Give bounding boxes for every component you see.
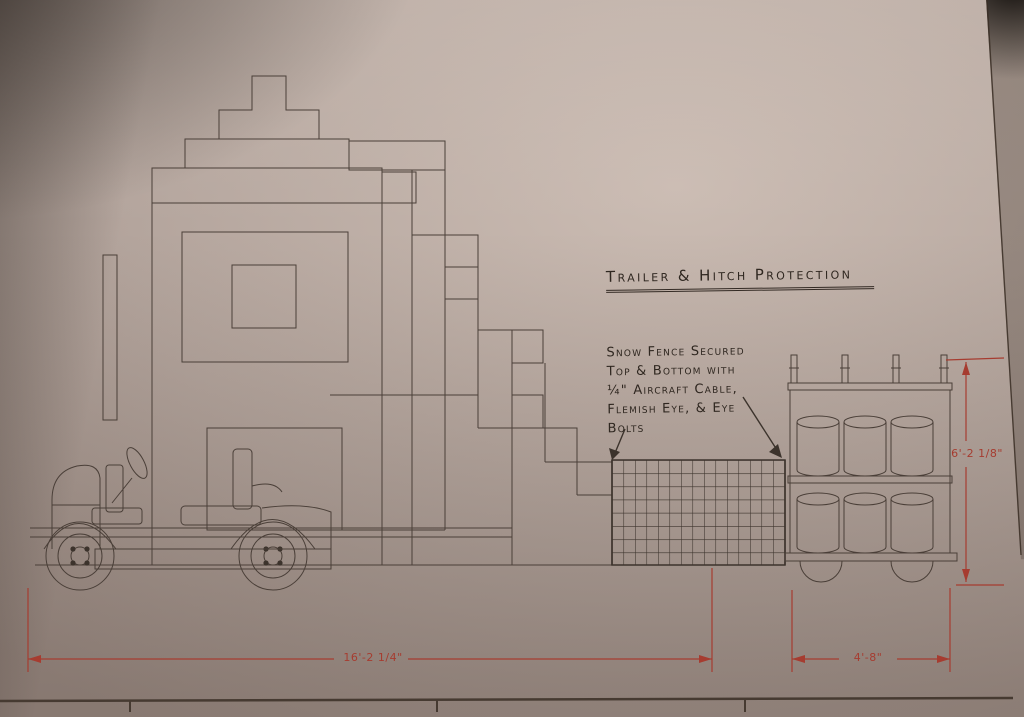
barrel bbox=[797, 416, 839, 476]
dimension-label-overall-length: 16'-2 1/4" bbox=[338, 651, 408, 664]
trailer-wheel bbox=[891, 561, 933, 582]
barrel bbox=[797, 493, 839, 553]
drawing-title: Trailer & Hitch Protection bbox=[606, 264, 874, 293]
barrel bbox=[844, 416, 886, 476]
barrel bbox=[891, 416, 933, 476]
barrel-trailer bbox=[785, 355, 957, 582]
photographed-blueprint: Trailer & Hitch Protection Snow Fence Se… bbox=[0, 0, 1024, 717]
barrel bbox=[891, 493, 933, 553]
castle-structure bbox=[30, 76, 612, 565]
dimension-label-trailer-height: 6'-2 1/8" bbox=[944, 447, 1010, 460]
note-line: Bolts bbox=[607, 417, 797, 439]
dimension-label-trailer-length: 4'-8" bbox=[842, 651, 894, 664]
golf-cart bbox=[44, 445, 331, 590]
trailer-wheel bbox=[800, 561, 842, 582]
paper-edge-line bbox=[987, 0, 1021, 555]
sheet-border bbox=[0, 0, 1021, 712]
snow-fence-note: Snow Fence Secured Top & Bottom with ¼" … bbox=[606, 341, 797, 439]
cad-drawing bbox=[0, 0, 1024, 717]
dimension-lines bbox=[28, 358, 1004, 672]
barrel bbox=[844, 493, 886, 553]
snow-fence-panel bbox=[612, 460, 785, 565]
